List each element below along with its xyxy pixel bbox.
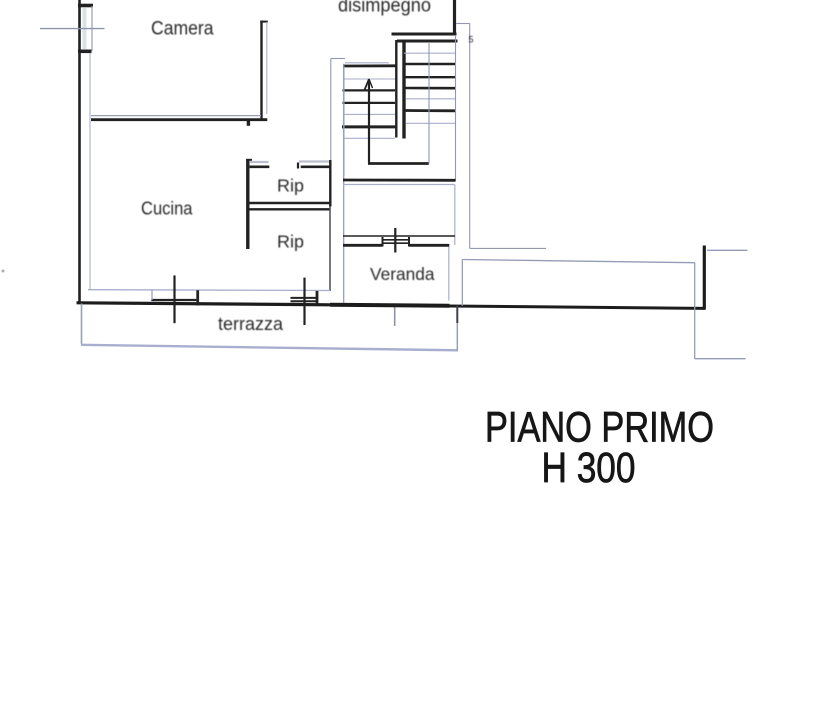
svg-text:Rip: Rip: [277, 232, 304, 252]
svg-text:5: 5: [469, 35, 474, 45]
svg-text:H 300: H 300: [542, 444, 636, 492]
svg-text:terrazza: terrazza: [218, 314, 284, 334]
svg-text:Veranda: Veranda: [370, 264, 435, 284]
svg-text:disimpegno: disimpegno: [338, 0, 431, 17]
svg-text:Camera: Camera: [151, 19, 214, 40]
svg-text:Rip: Rip: [277, 176, 304, 196]
svg-text:Cucina: Cucina: [141, 198, 193, 219]
